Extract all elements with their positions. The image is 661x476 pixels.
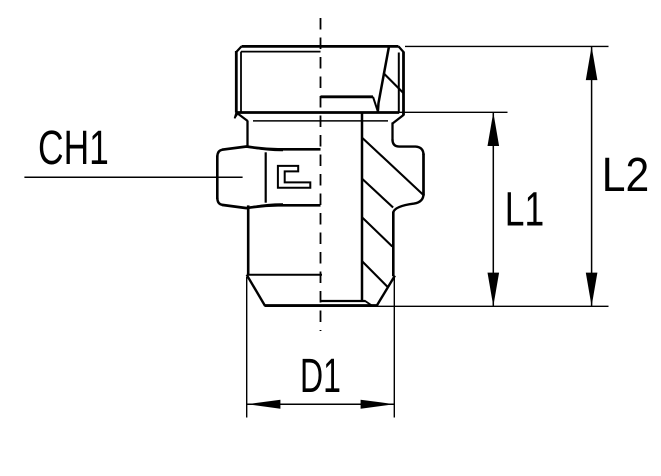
- svg-text:L2: L2: [602, 148, 649, 202]
- svg-text:CH1: CH1: [38, 120, 109, 174]
- svg-text:L1: L1: [505, 182, 544, 236]
- svg-text:D1: D1: [300, 349, 341, 403]
